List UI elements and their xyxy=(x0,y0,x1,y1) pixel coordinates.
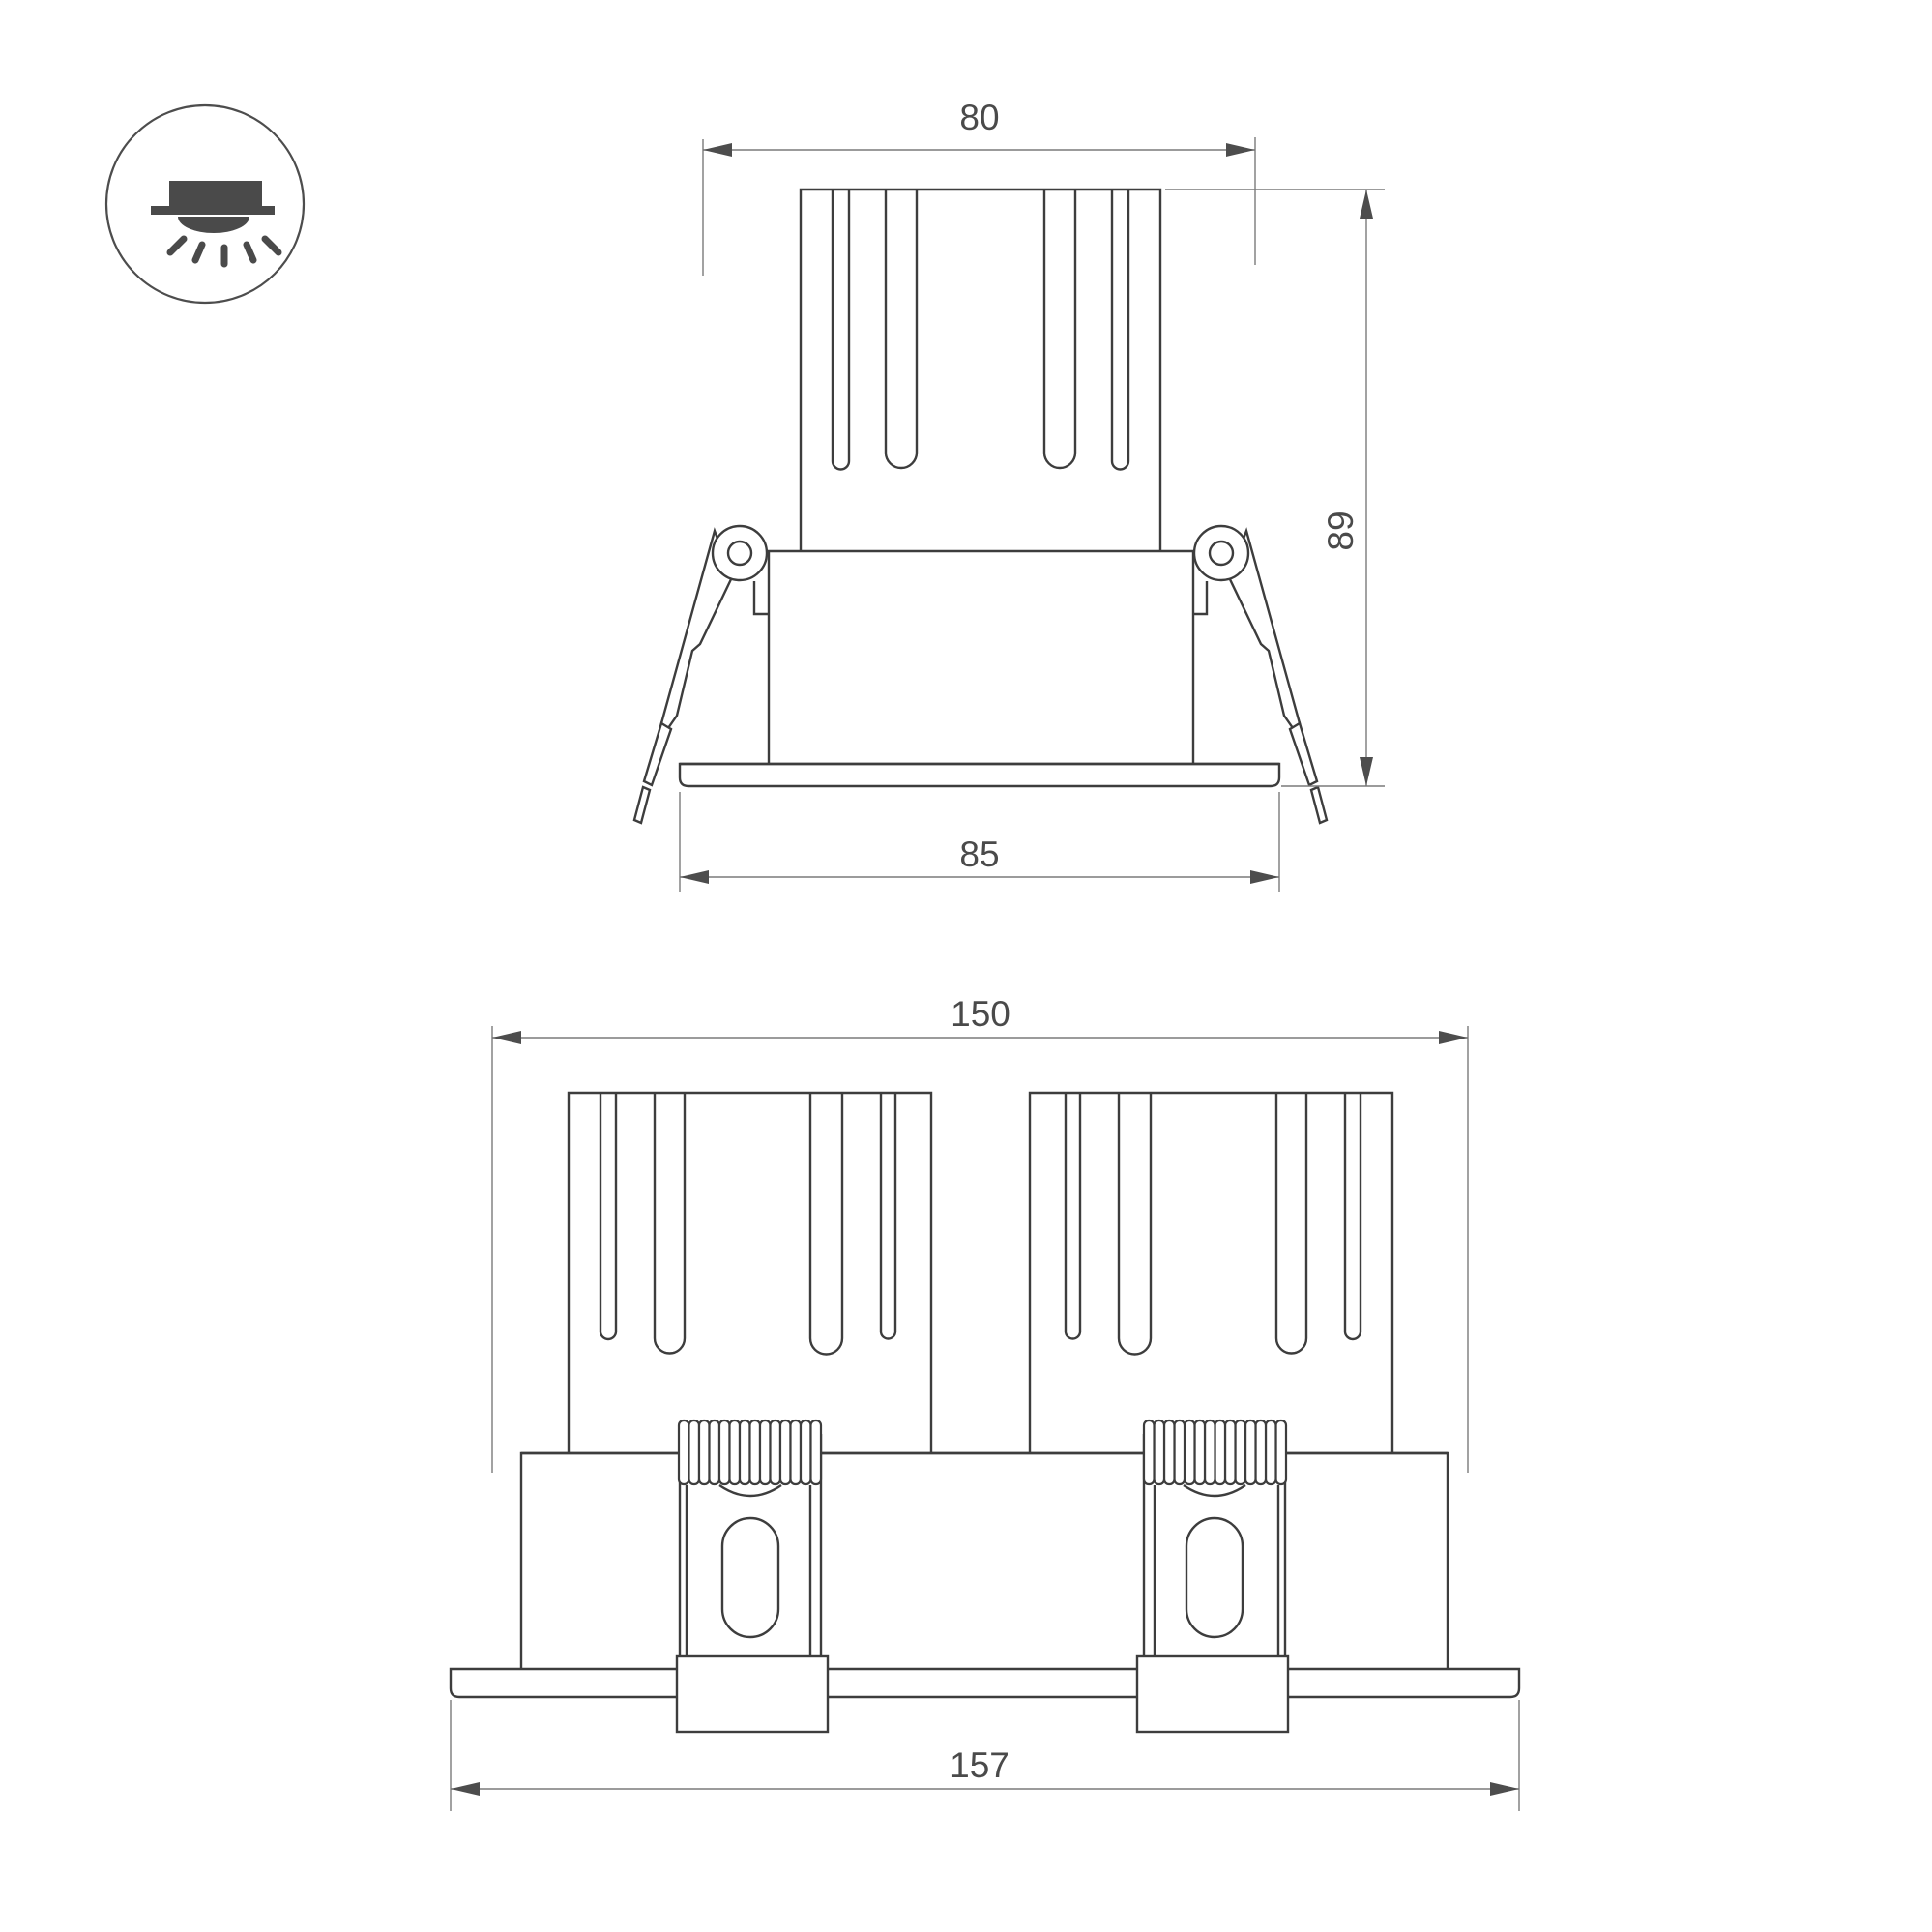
dual-view: 150 157 xyxy=(451,994,1519,1811)
dimension-dual-flange-width: 157 xyxy=(451,1700,1519,1811)
arrow-left-icon xyxy=(703,143,732,157)
front-heatsink xyxy=(801,190,1160,551)
clamp-spring-arc xyxy=(719,1485,781,1496)
dimension-front-top-width: 80 xyxy=(703,98,1255,276)
clip-blade xyxy=(644,723,671,785)
arrow-left-icon xyxy=(451,1782,480,1796)
dual-heatsink-left-fins xyxy=(600,1093,895,1355)
dual-heatsink-right-fins xyxy=(1066,1093,1361,1355)
dim-157-label: 157 xyxy=(950,1745,1010,1785)
clamp-knurl-coil xyxy=(679,1420,821,1484)
arrow-up-icon xyxy=(1360,190,1373,219)
arrow-right-icon xyxy=(1490,1782,1519,1796)
icon-light-rays xyxy=(170,239,278,264)
front-trim-flange xyxy=(680,764,1279,786)
dim-150-label: 150 xyxy=(951,994,1010,1034)
arrow-right-icon xyxy=(1226,143,1255,157)
dual-heatsink-right xyxy=(1030,1093,1392,1453)
front-heatsink-fins xyxy=(833,190,1128,470)
clip-pivot-hole xyxy=(728,542,751,565)
dual-clamp-left xyxy=(677,1420,828,1732)
arrow-down-icon xyxy=(1360,757,1373,786)
arrow-left-icon xyxy=(492,1031,521,1044)
clip-bracket-tab xyxy=(754,581,768,614)
dim-89-label: 89 xyxy=(1321,511,1361,550)
dimension-dual-body-width: 150 xyxy=(492,994,1468,1473)
arrow-left-icon xyxy=(680,870,709,884)
icon-housing xyxy=(169,181,262,208)
clip-needle xyxy=(634,787,650,823)
luminaire-dimension-drawing: 80 85 89 xyxy=(0,0,1932,1932)
dimension-front-height: 89 xyxy=(1165,190,1385,786)
dim-85-label: 85 xyxy=(959,834,999,874)
clamp-slot-oval xyxy=(722,1518,778,1637)
dimension-front-flange-width: 85 xyxy=(680,792,1279,892)
technical-drawing-page: 80 85 89 xyxy=(0,0,1932,1932)
arrow-right-icon xyxy=(1439,1031,1468,1044)
dim-80-label: 80 xyxy=(959,98,999,137)
dual-heatsink-left xyxy=(569,1093,931,1453)
dual-trim-flange xyxy=(451,1669,1519,1697)
dual-body-box xyxy=(521,1453,1448,1669)
front-body xyxy=(769,551,1193,764)
arrow-right-icon xyxy=(1250,870,1279,884)
icon-lamp-dome xyxy=(178,217,249,233)
front-view: 80 85 89 xyxy=(634,98,1385,892)
icon-trim-bar xyxy=(151,206,275,215)
recessed-downlight-icon xyxy=(106,105,304,303)
clamp-foot xyxy=(677,1656,828,1732)
dual-clamp-right xyxy=(1137,1420,1288,1732)
